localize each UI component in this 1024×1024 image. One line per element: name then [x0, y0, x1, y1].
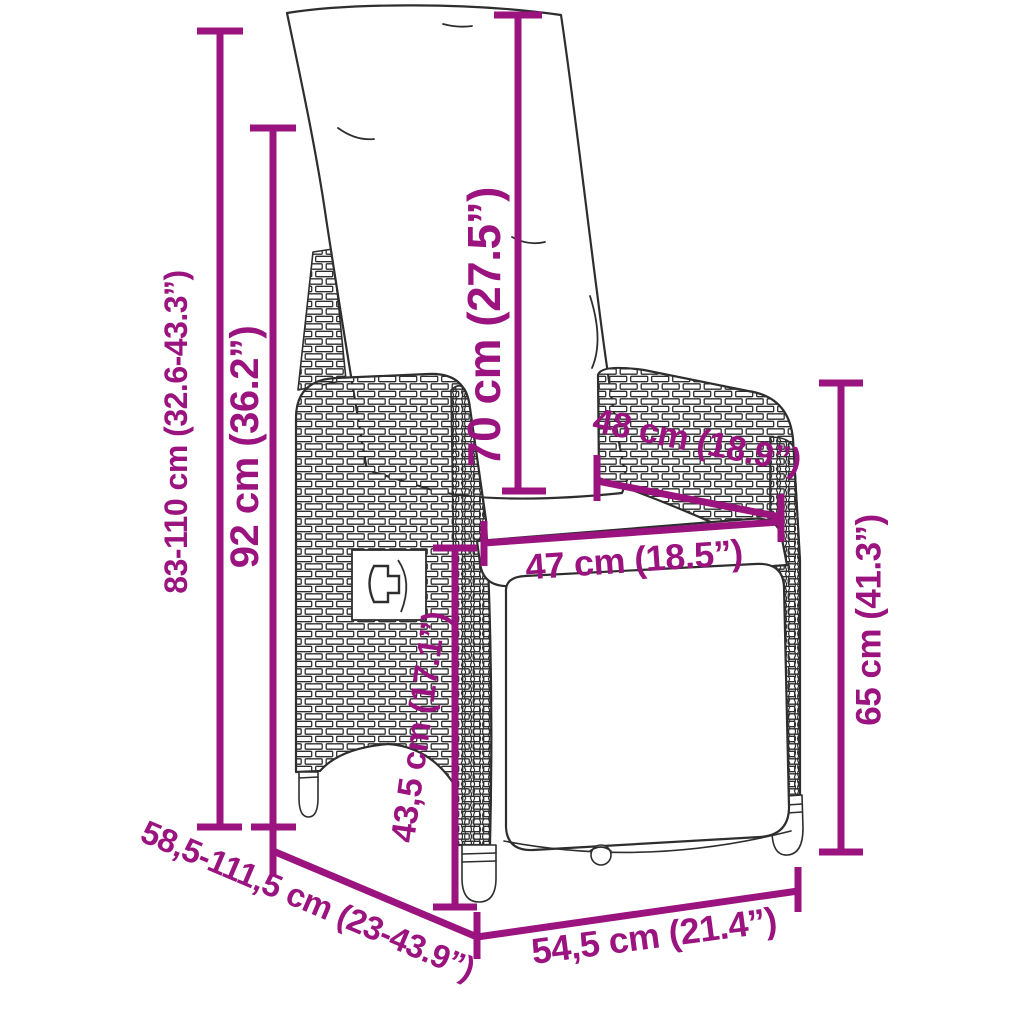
caster-wheel — [590, 845, 611, 865]
rear-left-leg — [299, 772, 318, 817]
recline-handle — [352, 550, 426, 620]
dimension-label-back-cushion-height: 70 cm (27.5”) — [461, 187, 507, 467]
dimension-label-armrest-height: 65 cm (41.3”) — [852, 514, 887, 725]
dimension-label-total-height: 83-110 cm (32.6-43.3”) — [160, 270, 192, 593]
product-dimension-diagram: 83-110 cm (32.6-43.3”) 92 cm (36.2”) 70 … — [0, 0, 1024, 1024]
front-left-leg — [462, 845, 496, 902]
chair-line-art — [0, 0, 1024, 1024]
dimension-label-backrest-height: 92 cm (36.2”) — [225, 326, 265, 569]
footrest-front-panel — [506, 564, 789, 850]
